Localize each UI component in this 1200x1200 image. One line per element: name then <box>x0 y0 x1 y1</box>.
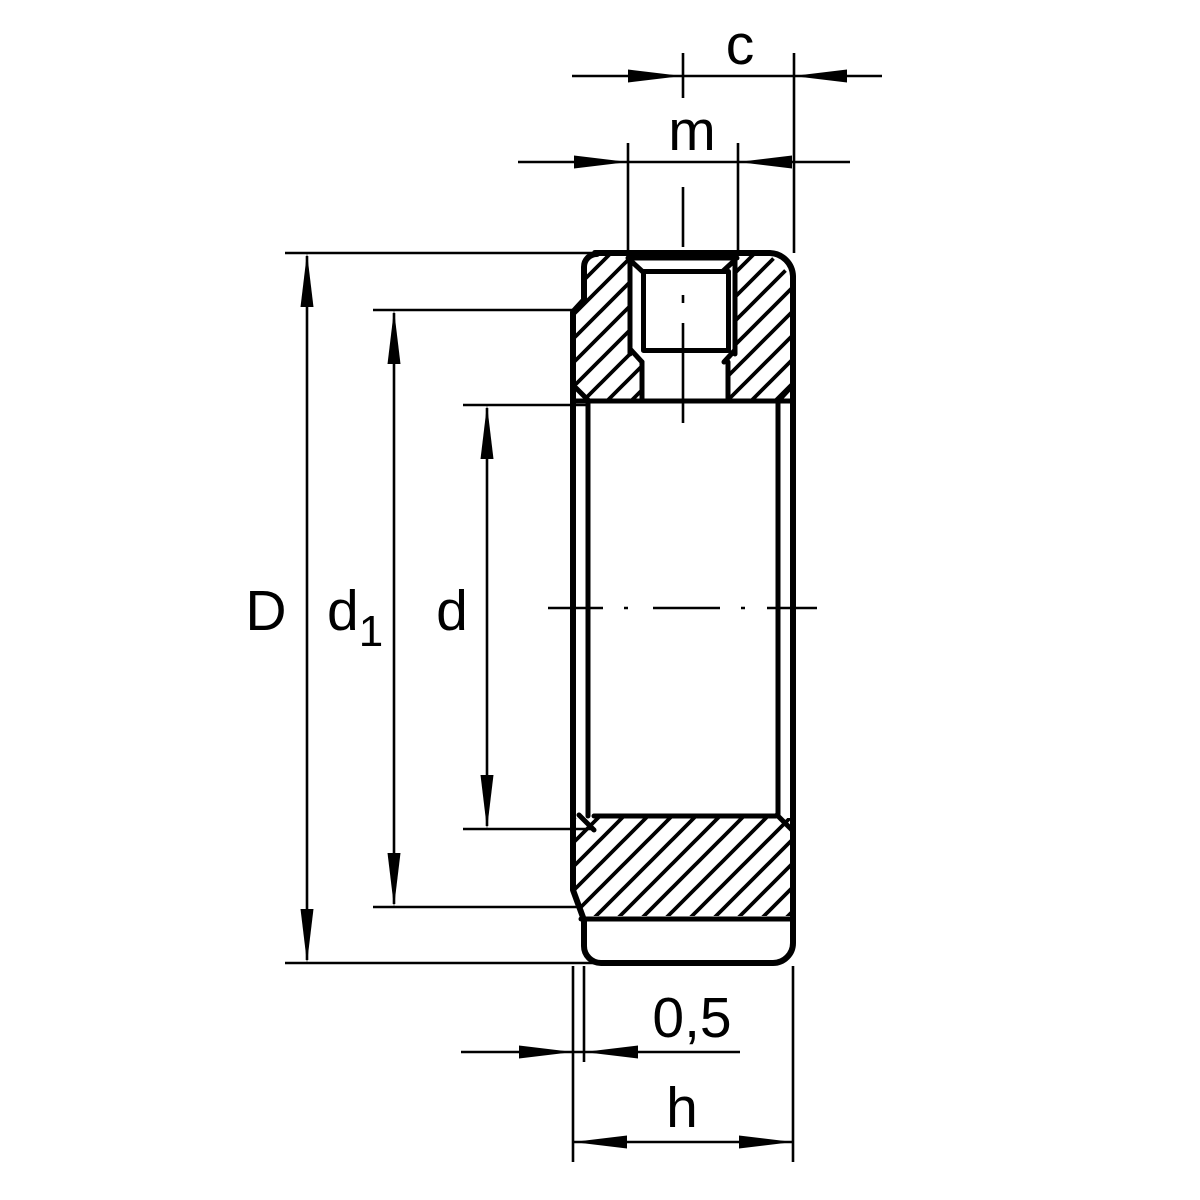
thread-insert-rect <box>644 272 729 351</box>
label-h: h <box>666 1076 698 1140</box>
label-m: m <box>668 99 715 163</box>
drawing-background <box>0 0 1200 1200</box>
label-lip-offset: 0,5 <box>652 986 731 1050</box>
label-c: c <box>726 13 755 77</box>
drawing-canvas: c m D d1 d <box>0 0 1200 1200</box>
label-d1-base: d <box>327 579 359 643</box>
hatch-bottom-flange <box>575 818 790 916</box>
label-D: D <box>245 579 286 643</box>
label-d: d <box>436 579 468 643</box>
technical-drawing-locknut-section: c m D d1 d <box>0 0 1200 1200</box>
label-d1-subscript: 1 <box>359 607 383 656</box>
